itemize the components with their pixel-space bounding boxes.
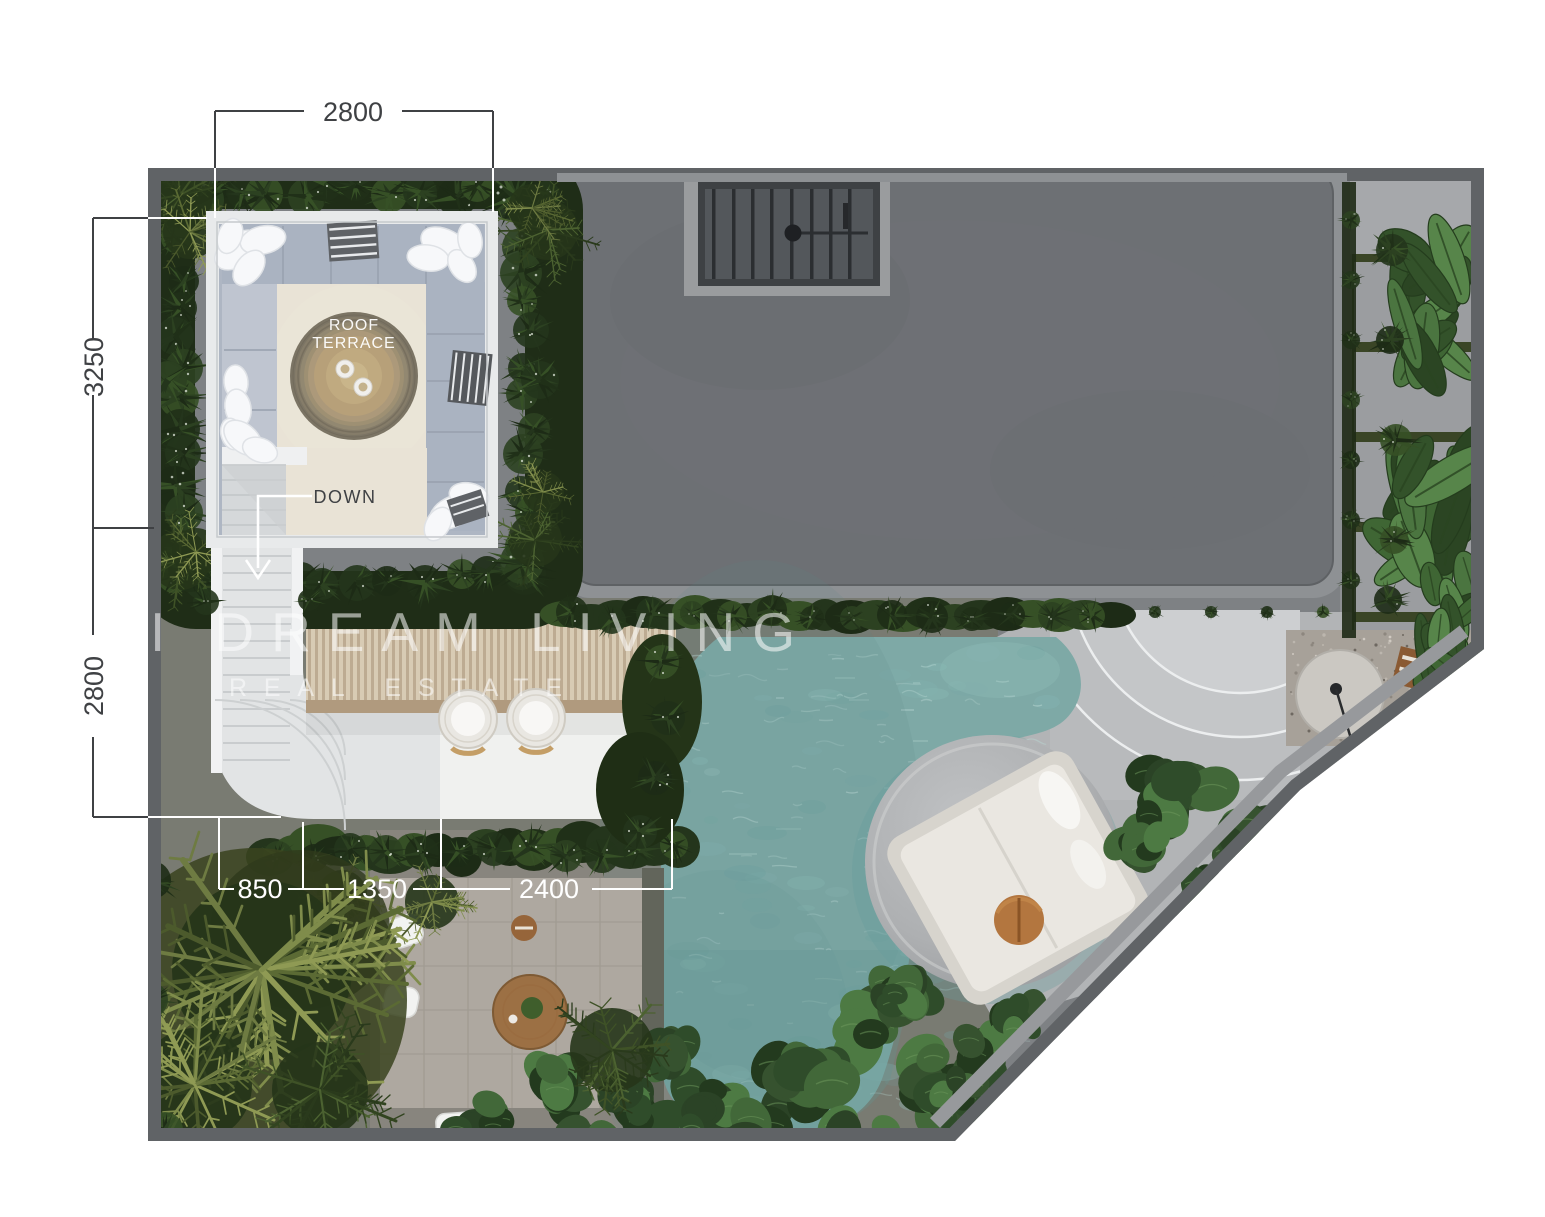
svg-text:2800: 2800 — [79, 656, 109, 716]
svg-text:3250: 3250 — [79, 337, 109, 397]
svg-text:2800: 2800 — [323, 97, 383, 127]
svg-text:ROOF: ROOF — [329, 317, 379, 334]
svg-text:850: 850 — [237, 874, 282, 904]
svg-text:DOWN: DOWN — [314, 487, 377, 507]
svg-text:2400: 2400 — [519, 874, 579, 904]
svg-text:I DREAM LIVING: I DREAM LIVING — [150, 601, 795, 663]
svg-text:1350: 1350 — [347, 874, 407, 904]
svg-text:TERRACE: TERRACE — [312, 335, 395, 352]
